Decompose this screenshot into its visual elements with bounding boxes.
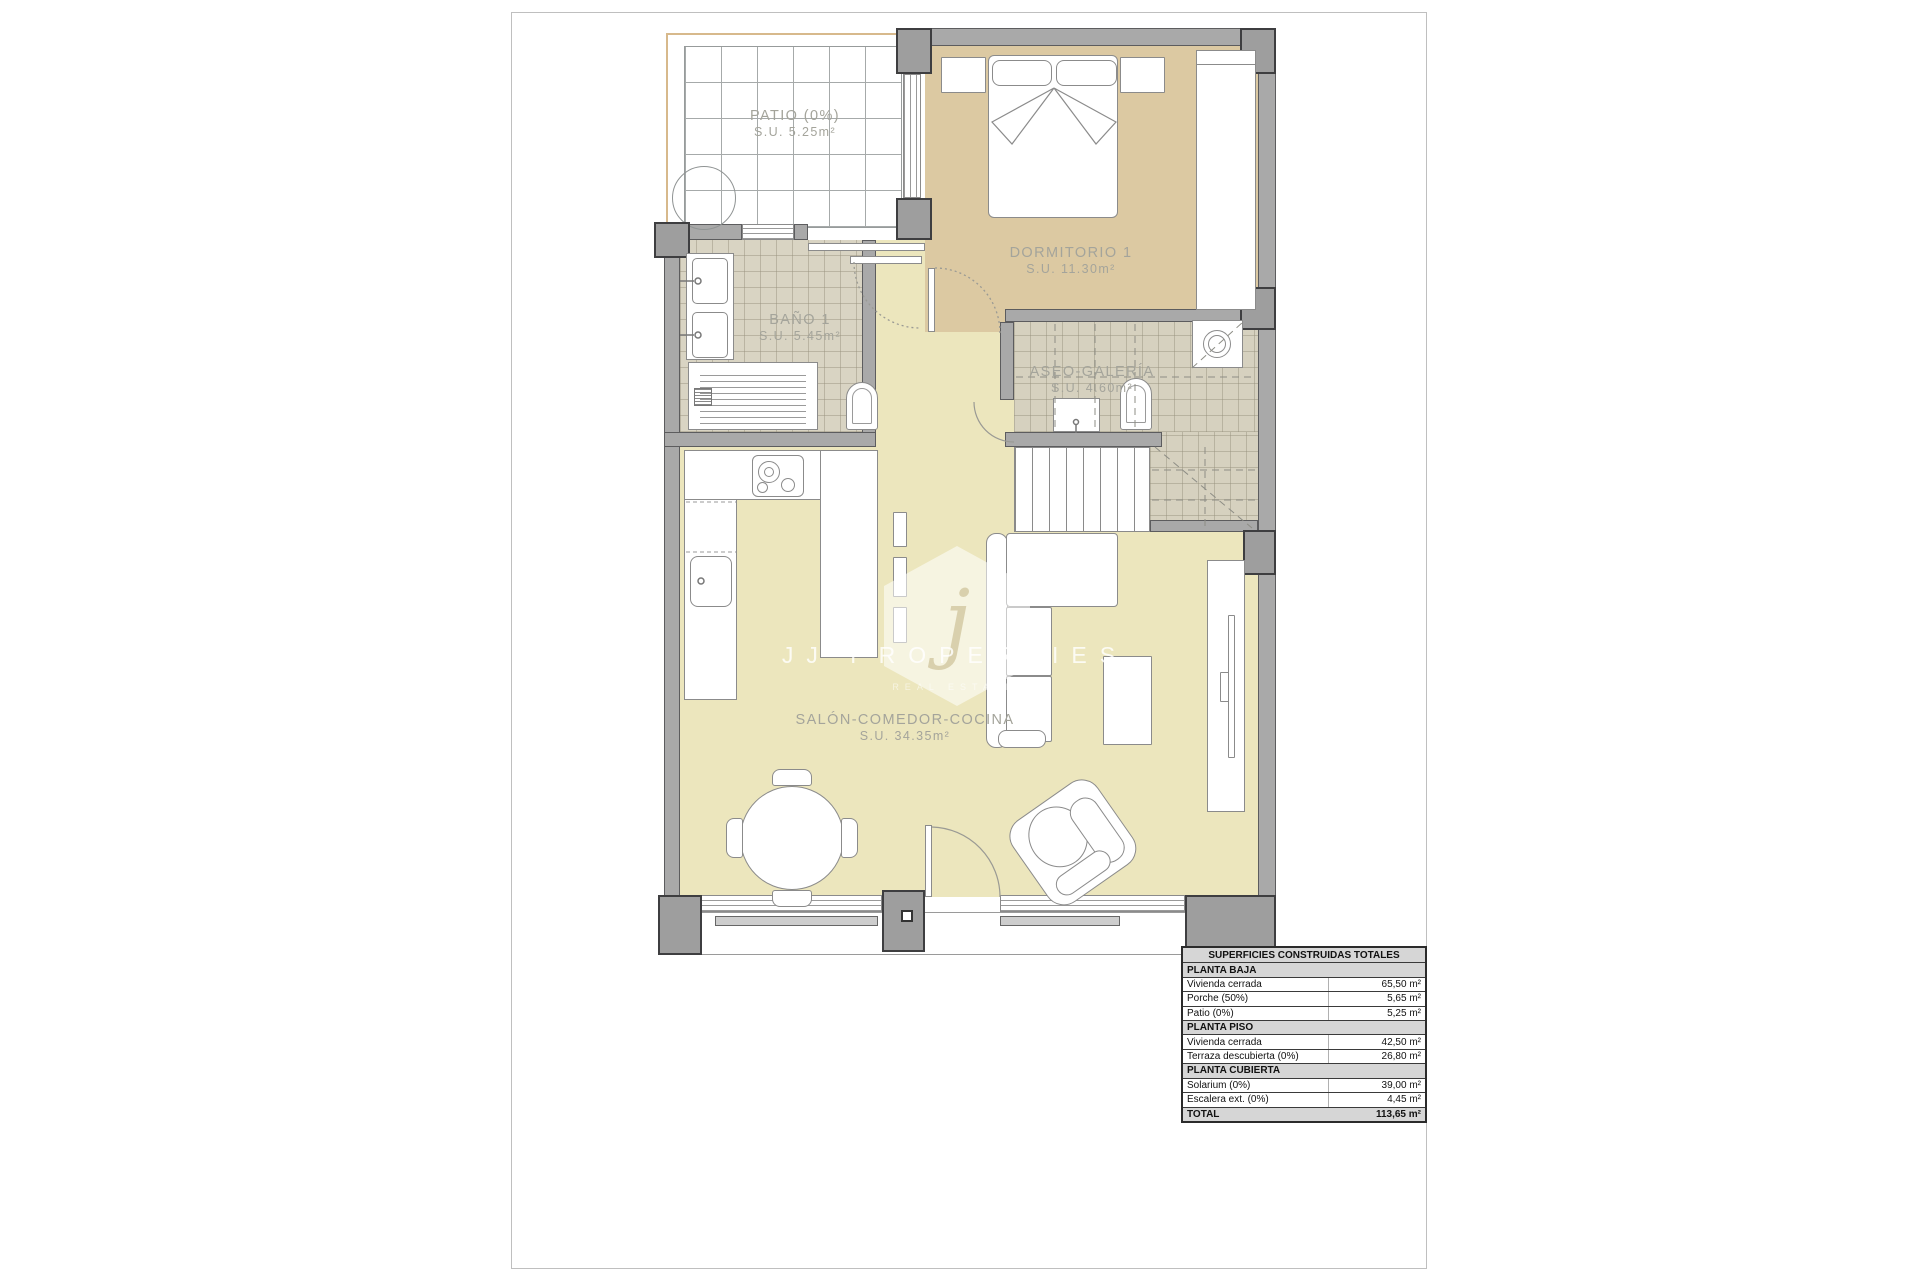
table-row: Escalera ext. (0%)4,45 m² — [1183, 1093, 1425, 1107]
table-row-value: 65,50 m² — [1328, 978, 1425, 991]
table-row: Vivienda cerrada42,50 m² — [1183, 1035, 1425, 1049]
pillar-right-living — [1243, 530, 1276, 575]
entrance-post — [901, 910, 913, 922]
table-row-label: TOTAL — [1183, 1109, 1329, 1120]
wall-aseo-left — [1000, 322, 1014, 400]
table-row: PLANTA CUBIERTA — [1183, 1064, 1425, 1078]
surfaces-table-header: SUPERFICIES CONSTRUIDAS TOTALES — [1183, 948, 1425, 963]
sofa-seat-1 — [1006, 607, 1052, 676]
floorplan-page: { "watermark": { "monogram": "j", "brand… — [0, 0, 1920, 1280]
table-row-value: 4,45 m² — [1328, 1093, 1425, 1106]
burner-small-2 — [781, 478, 795, 492]
aseo-toilet-bowl — [1126, 385, 1146, 423]
bottom-window-right — [1000, 895, 1185, 912]
table-row-label: Porche (50%) — [1183, 993, 1328, 1004]
bath-door-leaf — [850, 256, 922, 264]
wall-bath-bottom — [664, 432, 876, 447]
bath-sink-2 — [692, 312, 728, 358]
wardrobe-divider — [1197, 64, 1255, 65]
shower-drain — [694, 388, 712, 406]
table-row: Porche (50%)5,65 m² — [1183, 992, 1425, 1006]
dining-chair-west — [726, 818, 743, 858]
table-row: PLANTA PISO — [1183, 1021, 1425, 1035]
sofa-armrest — [998, 730, 1046, 748]
table-row-value: 5,65 m² — [1328, 992, 1425, 1005]
table-row: TOTAL113,65 m² — [1183, 1108, 1425, 1121]
sofa-back — [986, 533, 1008, 748]
patio-tree-circle — [672, 166, 736, 230]
surfaces-table-body: PLANTA BAJAVivienda cerrada65,50 m²Porch… — [1183, 963, 1425, 1121]
table-row: Patio (0%)5,25 m² — [1183, 1007, 1425, 1021]
shelf-1 — [893, 512, 907, 547]
table-row: PLANTA BAJA — [1183, 963, 1425, 977]
nightstand-right — [1120, 57, 1165, 93]
table-row-value: 42,50 m² — [1328, 1035, 1425, 1048]
dining-chair-east — [841, 818, 858, 858]
table-row-label: Terraza descubierta (0%) — [1183, 1051, 1328, 1062]
wardrobe — [1196, 50, 1256, 310]
patio-window — [742, 224, 794, 240]
pillar-patio-left — [654, 222, 690, 258]
surfaces-table: SUPERFICIES CONSTRUIDAS TOTALES PLANTA B… — [1181, 946, 1427, 1123]
bedroom-patio-window — [903, 74, 921, 198]
burner-large-inner — [764, 467, 774, 477]
plot-line-left — [666, 33, 668, 224]
pillar-bottomleft — [658, 895, 702, 955]
table-row-value: 5,25 m² — [1328, 1007, 1425, 1020]
pillow-right — [1056, 60, 1117, 86]
kitchen-sink — [690, 556, 732, 607]
table-row-label: Vivienda cerrada — [1183, 979, 1328, 990]
hall-floor-lower — [876, 332, 1014, 447]
nightstand-left — [941, 57, 986, 93]
bath-door-head — [808, 243, 925, 251]
shelf-3 — [893, 607, 907, 643]
sofa-chaise — [1006, 533, 1118, 607]
table-row: Terraza descubierta (0%)26,80 m² — [1183, 1050, 1425, 1064]
kitchen-island — [820, 450, 878, 658]
bedroom-door-leaf — [928, 268, 935, 332]
window-sill-left — [715, 916, 878, 926]
pillow-left — [992, 60, 1052, 86]
bath-sink-1 — [692, 258, 728, 304]
dining-chair-south — [772, 890, 812, 907]
table-row-label: Patio (0%) — [1183, 1008, 1328, 1019]
wall-top — [896, 28, 1276, 46]
table-row-value: 39,00 m² — [1328, 1079, 1425, 1092]
wall-understairs-bottom — [1150, 520, 1258, 532]
entrance-door-leaf — [925, 825, 932, 897]
shower-stripes — [700, 370, 806, 424]
bedroom-floor-patch — [925, 310, 1005, 332]
aseo-sink — [1053, 398, 1100, 432]
pillar-bedroom-topleft — [896, 28, 932, 74]
table-row-value: 26,80 m² — [1328, 1050, 1425, 1063]
bath-toilet-bowl — [852, 388, 872, 424]
surfaces-table-title: SUPERFICIES CONSTRUIDAS TOTALES — [1208, 950, 1399, 961]
tv-screen — [1228, 615, 1235, 758]
wall-patio-bottom-b — [794, 224, 808, 240]
staircase — [1014, 447, 1150, 532]
wall-right — [1258, 28, 1276, 955]
table-row-label: Solarium (0%) — [1183, 1080, 1328, 1091]
table-row: Solarium (0%)39,00 m² — [1183, 1079, 1425, 1093]
dining-table — [740, 786, 844, 890]
table-row-label: Escalera ext. (0%) — [1183, 1094, 1328, 1105]
burner-small-1 — [757, 482, 768, 493]
wall-aseo-bottom — [1005, 432, 1162, 447]
coffee-table — [1103, 656, 1152, 745]
washing-machine-drum-inner — [1208, 335, 1226, 353]
dining-chair-north — [772, 769, 812, 786]
table-row: Vivienda cerrada65,50 m² — [1183, 978, 1425, 992]
table-row-label: PLANTA CUBIERTA — [1183, 1065, 1425, 1076]
table-row-value: 113,65 m² — [1329, 1108, 1425, 1121]
shelf-2 — [893, 557, 907, 597]
wall-left — [664, 240, 680, 912]
plot-line-top — [666, 33, 906, 35]
hall-floor-upper — [876, 240, 925, 332]
pillar-patio-right — [896, 198, 932, 240]
tv-bracket — [1220, 672, 1229, 702]
table-row-label: PLANTA PISO — [1183, 1022, 1425, 1033]
understairs-floor — [1150, 432, 1258, 532]
table-row-label: PLANTA BAJA — [1183, 965, 1425, 976]
table-row-label: Vivienda cerrada — [1183, 1037, 1328, 1048]
window-sill-right — [1000, 916, 1120, 926]
